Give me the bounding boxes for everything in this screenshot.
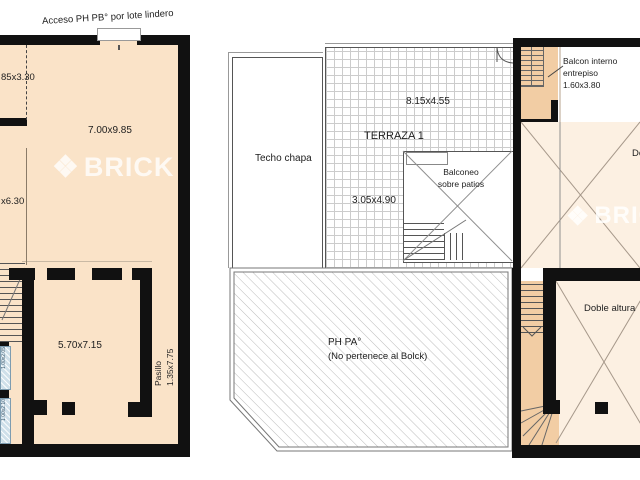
- lp-room-window-gap-2: [75, 268, 92, 280]
- techo-chapa-label: Techo chapa: [255, 153, 312, 164]
- dim-mid-left: x6.30: [1, 196, 24, 207]
- balconeo-line2: sobre patios: [438, 179, 484, 189]
- dim-room: 5.70x7.15: [58, 340, 102, 351]
- dim-upper-left: 85x3.30: [1, 72, 35, 83]
- lp-room-window-gap-1: [35, 268, 47, 280]
- diamond-icon: ❖: [52, 153, 79, 183]
- ph-pa-line2: (No pertenece al Bolck): [328, 351, 427, 362]
- balcon-interno-line3: 1.60x3.80: [563, 80, 600, 90]
- lp-room-pillar-mid: [62, 402, 75, 415]
- rp-room-wall-top: [543, 268, 640, 281]
- window-lower-dim: 1.00x2.10: [1, 399, 7, 421]
- lp-entry-door-leaf: [97, 28, 141, 41]
- balconeo-line1: Balconeo: [443, 167, 478, 177]
- rp-wall-left-upper: [513, 47, 521, 268]
- ph-pa-label: PH PA° (No pertenece al Bolck): [328, 336, 427, 364]
- brick-watermark-text: BRICK: [84, 152, 175, 183]
- diamond-icon: ❖: [566, 203, 589, 229]
- lp-room-wall-left: [22, 280, 34, 444]
- lp-partition-solid: [26, 148, 27, 265]
- lp-room-wall-right: [140, 268, 152, 417]
- doble-altura-label: Doble altura: [584, 303, 635, 314]
- rp-wall-bottom: [512, 445, 640, 458]
- terraza-label: TERRAZA 1: [364, 130, 424, 142]
- doble-altura-upper-label: Doble altura: [632, 148, 640, 159]
- brick-watermark-left: ❖ BRICK: [52, 152, 174, 183]
- lp-wall-top: [0, 35, 190, 45]
- balcon-interno-line2: entrepiso: [563, 68, 598, 78]
- terraza-dim-main: 8.15x4.55: [406, 96, 450, 107]
- lp-wall-stub-upper: [0, 118, 27, 126]
- lp-room-window-gap-3: [122, 268, 132, 280]
- pasillo-labels: Pasillo 1.35x7.75: [153, 314, 175, 386]
- lp-wall-right: [178, 35, 190, 457]
- terraza-dim-lower: 3.05x4.90: [352, 195, 396, 206]
- dim-main: 7.00x9.85: [88, 125, 132, 136]
- window-upper-dim: 1.00x2.05: [1, 347, 7, 369]
- rp-wall-top: [513, 38, 640, 47]
- rp-room-pillar-mid: [595, 402, 608, 414]
- balconeo-label: Balconeo sobre patios: [430, 166, 492, 190]
- rp-room-wall-left: [543, 281, 556, 401]
- lp-wall-bottom: [0, 444, 190, 457]
- brick-watermark-text: BRICK: [594, 202, 640, 230]
- lp-room-wall-foot: [128, 402, 152, 417]
- ph-pa-line1: PH PA°: [328, 337, 361, 348]
- balcon-interno-label: Balcon interno entrepiso 1.60x3.80: [563, 55, 617, 91]
- pasillo-dim: 1.35x7.75: [165, 314, 175, 386]
- rp-wall-left-lower: [512, 268, 521, 458]
- brick-watermark-right: ❖ BRICK: [566, 202, 640, 230]
- floorplan-canvas: Acceso PH PB° por lote lindero 85x3.30 7…: [0, 0, 640, 480]
- balcon-interno-line1: Balcon interno: [563, 56, 617, 66]
- rp-room-pillar-left: [543, 400, 560, 414]
- rp-balcon-bottom: [521, 119, 558, 122]
- pasillo-label: Pasillo: [153, 314, 163, 386]
- lp-room-pillar-left: [34, 400, 47, 415]
